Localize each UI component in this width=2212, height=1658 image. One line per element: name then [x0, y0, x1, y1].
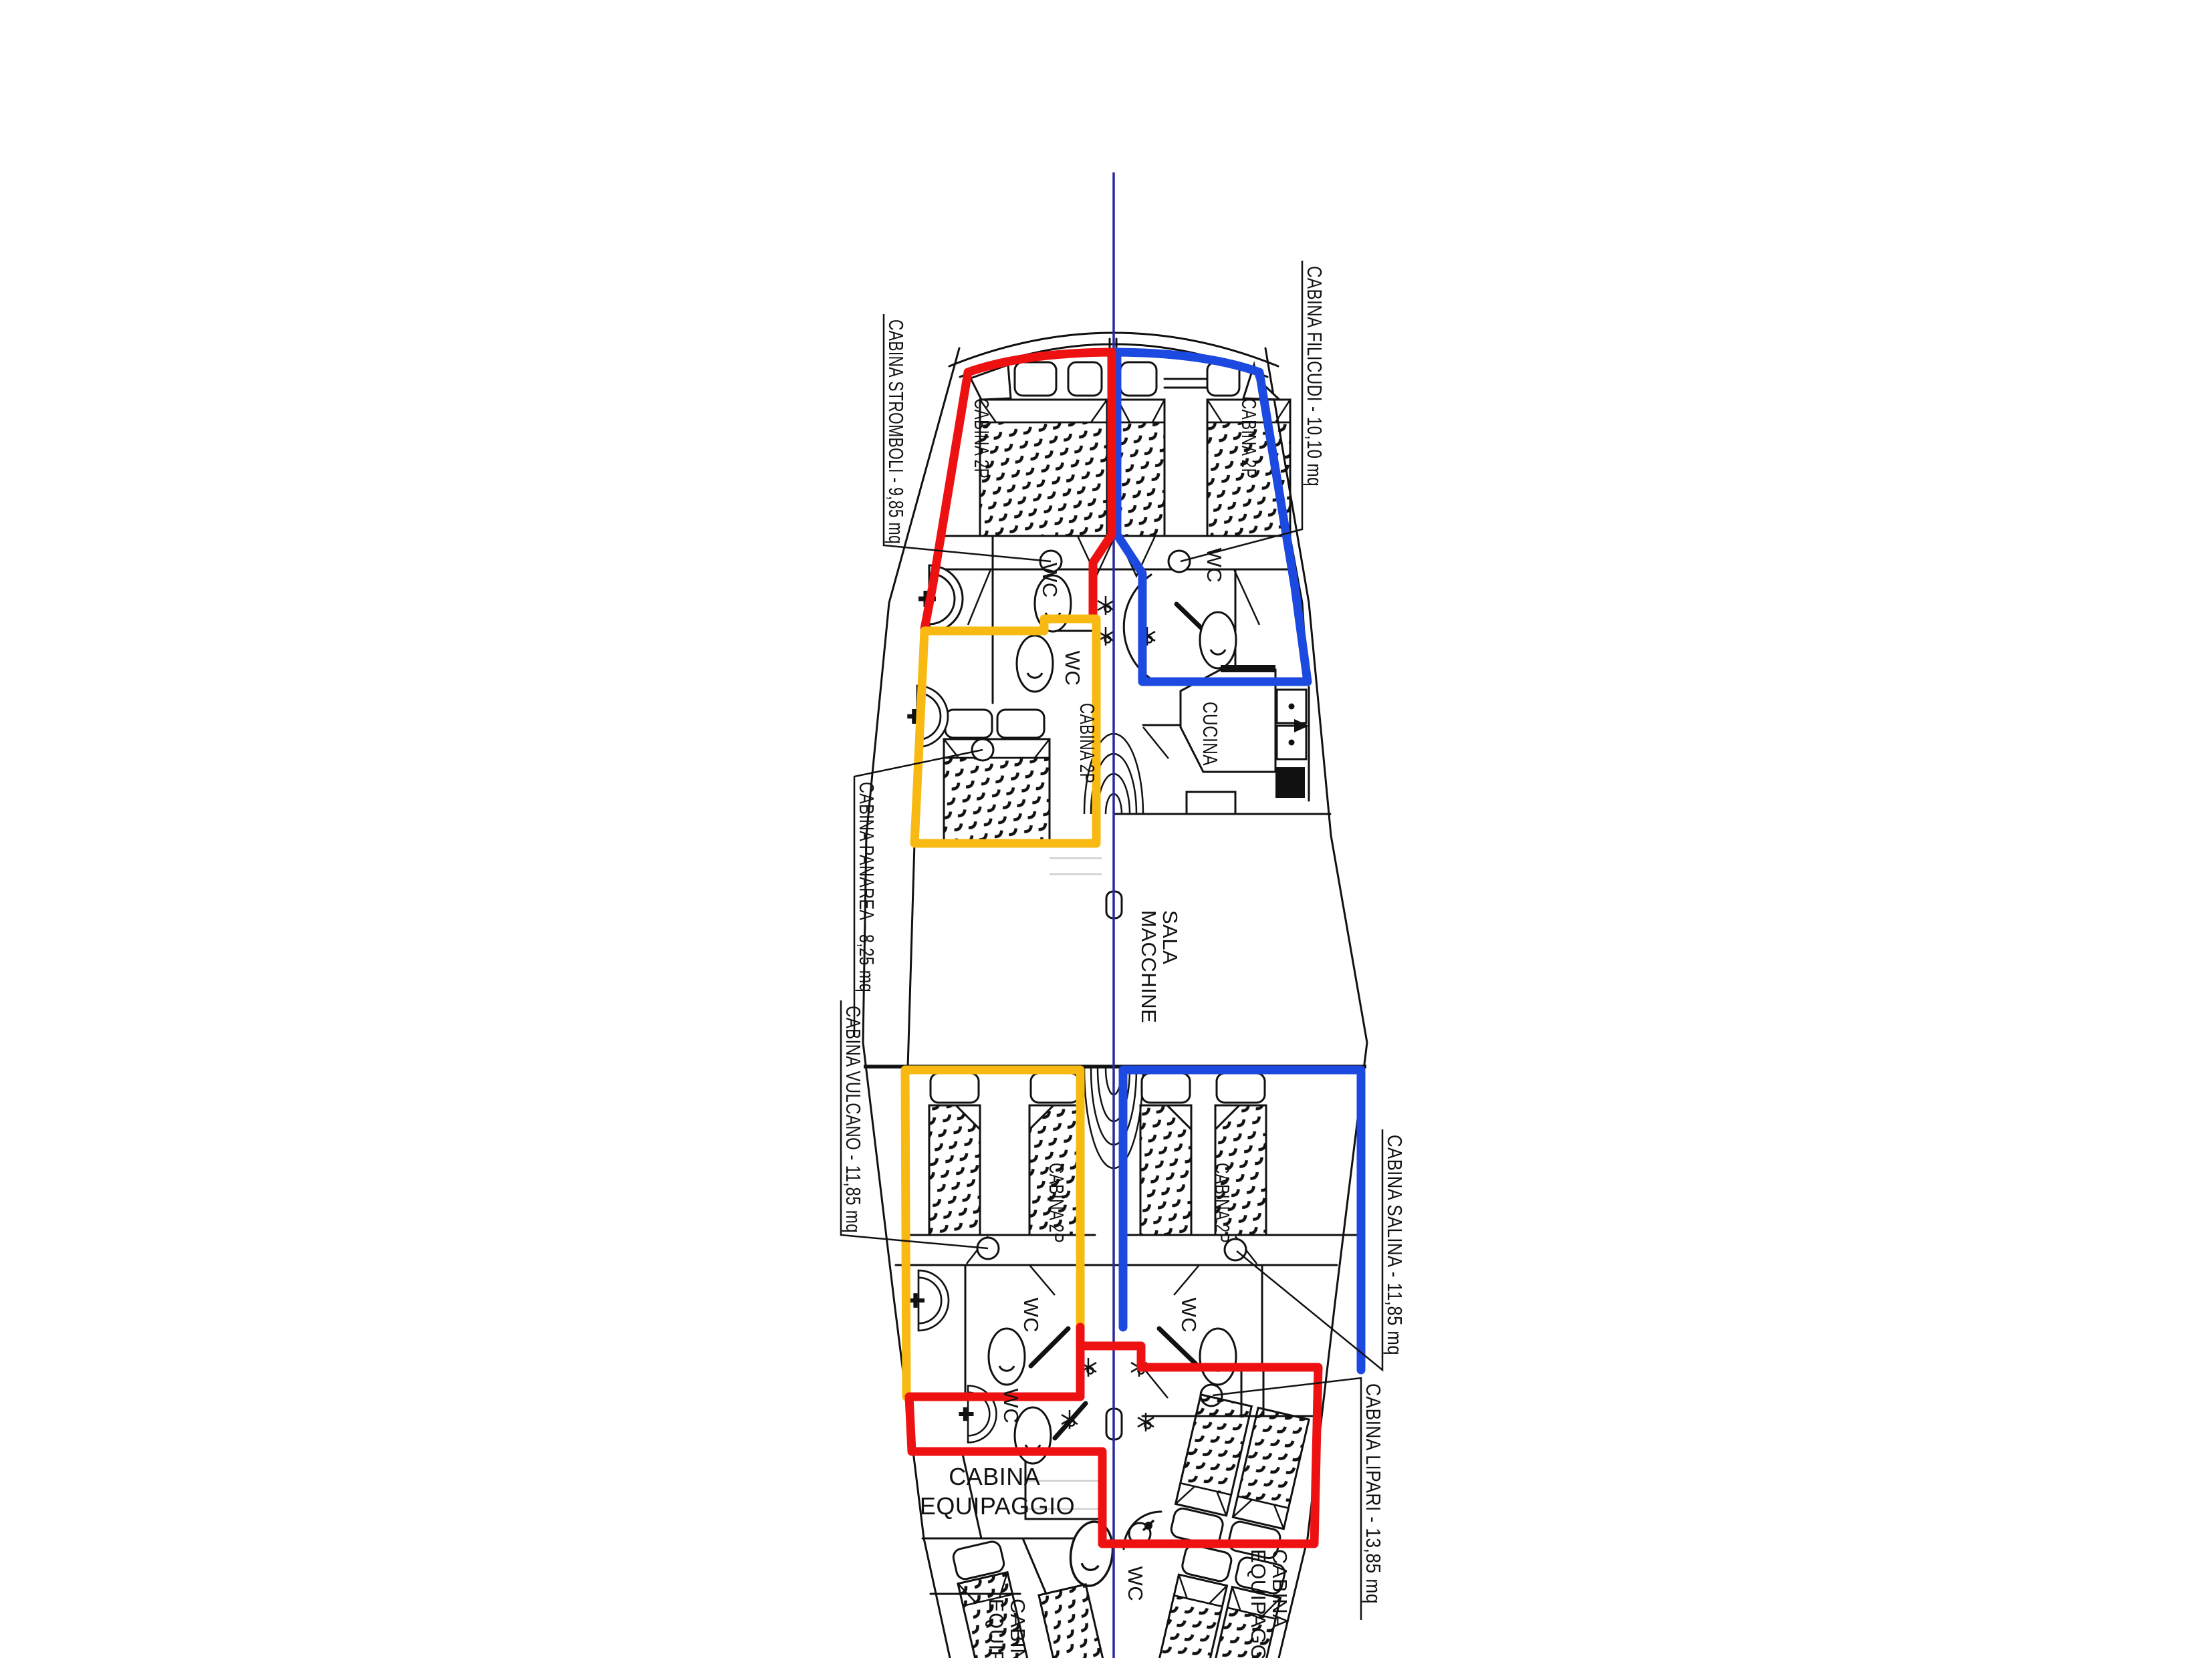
deck-plan-drawing: CABINA STROMBOLI - 9,85 mq CABINA FILICU… — [0, 0, 2212, 1658]
room-label-cucina: CUCINA — [1199, 702, 1222, 766]
room-label-cabina2p-vulcano: CABINA 2P — [1045, 1163, 1068, 1243]
room-label-wc-vulcano: WC — [1019, 1298, 1043, 1333]
callout-vulcano: CABINA VULCANO - 11,85 mq — [842, 1006, 865, 1233]
callout-filicudi: CABINA FILICUDI - 10,10 mq — [1303, 266, 1326, 487]
panarea-cabin-furniture — [907, 636, 1053, 843]
room-label-cabina2p-panarea: CABINA 2P — [1076, 703, 1099, 783]
room-label-sala-macchine: SALA MACCHINE — [1137, 910, 1182, 1023]
deck-plan-page: CABINA STROMBOLI - 9,85 mq CABINA FILICU… — [0, 0, 2212, 1658]
room-label-wc-salina: WC — [1177, 1298, 1201, 1333]
mid-wc-fixtures — [909, 1270, 2212, 1385]
room-label-cabina2p-filicudi: CABINA 2P — [1237, 398, 1261, 478]
room-label-cabina2p-stromboli: CABINA 2P — [970, 398, 993, 478]
room-label-wc-bow-right: WC — [1203, 548, 1226, 583]
callout-stromboli: CABINA STROMBOLI - 9,85 mq — [884, 319, 908, 544]
room-label-wc-lipari: WC — [999, 1389, 1023, 1424]
room-label-cabina2p-salina: CABINA 2P — [1211, 1163, 1234, 1243]
callout-lipari: CABINA LIPARI - 13,85 mq — [1362, 1383, 1385, 1604]
room-label-crew-cabin-stern-right: CABINA EQUIPAGGIO — [1247, 1549, 1292, 1658]
callout-salina: CABINA SALINA - 11,85 mq — [1383, 1135, 1406, 1355]
room-label-wc-bow-left: WC — [1038, 563, 1062, 598]
room-label-crew-cabin-stern-left: CABINA EQUIPAGGIO — [985, 1599, 1029, 1658]
callout-panarea: CABINA PANAREA - 8,25 mq — [855, 782, 878, 992]
room-label-crew-cabin-mid: CABINA EQUIPAGGIO — [920, 1463, 1075, 1520]
room-label-wc-panarea: WC — [1061, 651, 1084, 686]
room-label-wc-stern: WC — [1124, 1566, 1147, 1602]
